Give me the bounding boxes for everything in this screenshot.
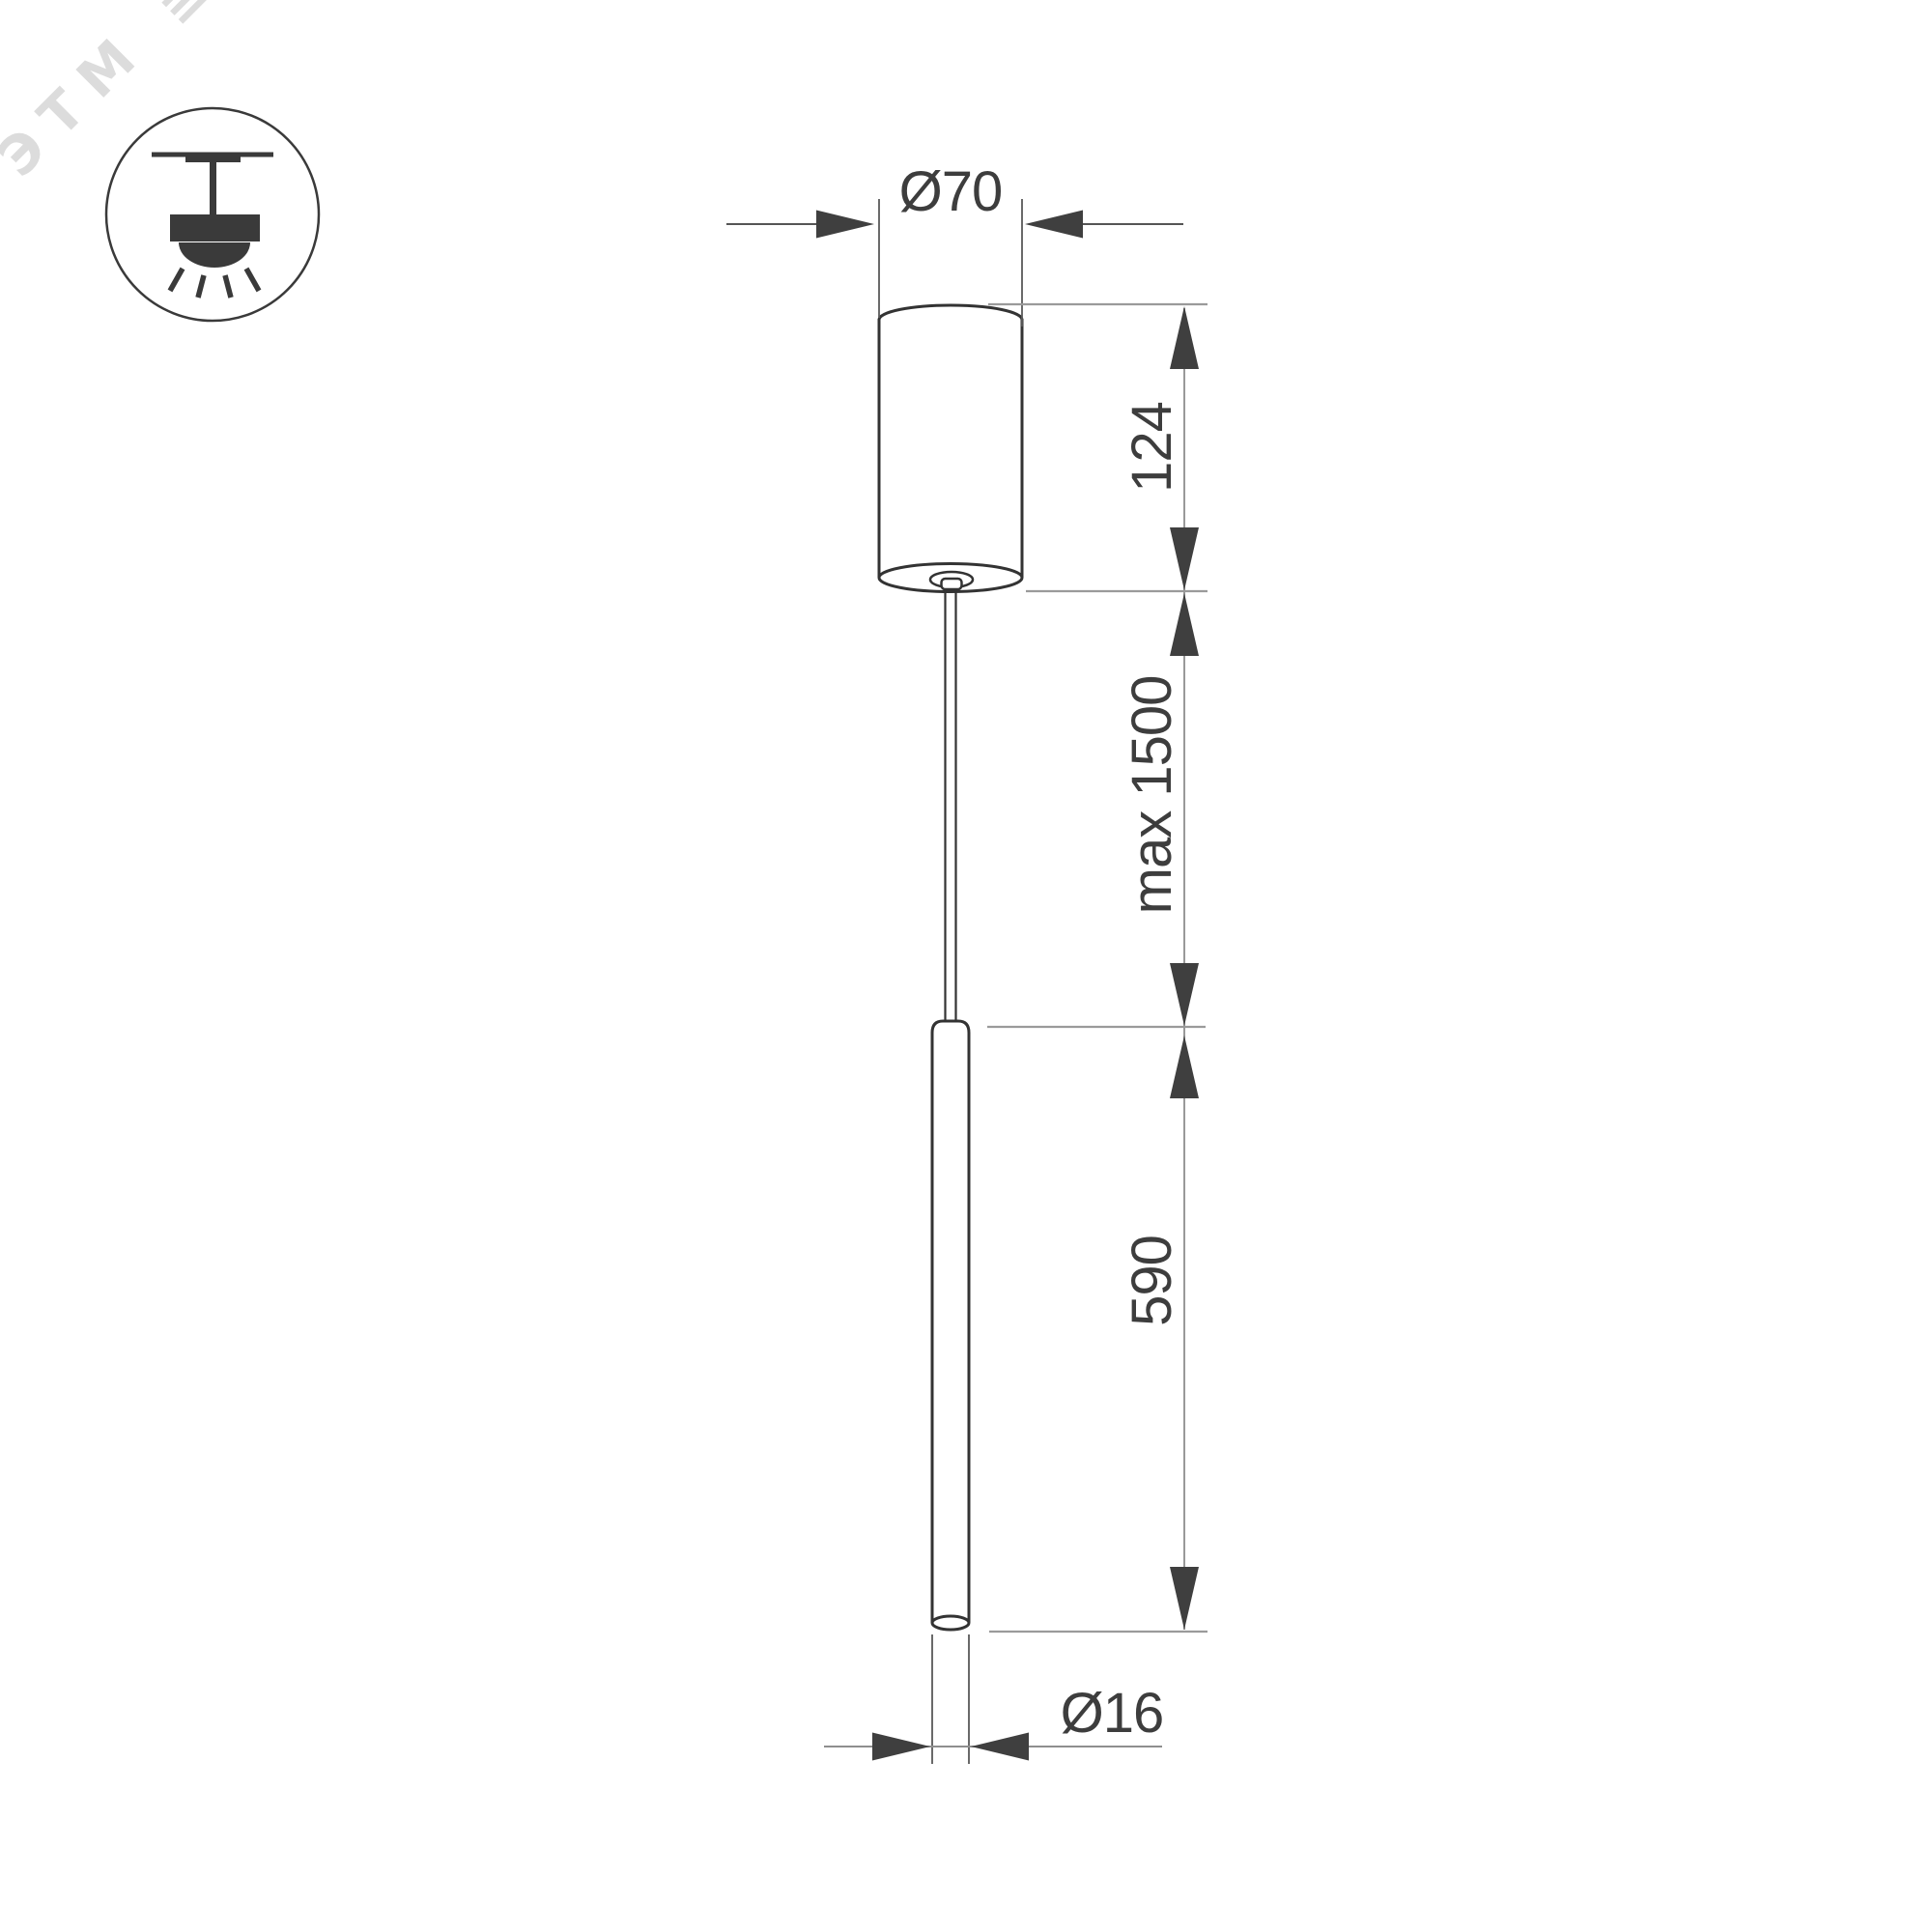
arrow-1500-bottom xyxy=(1170,963,1199,1026)
suspension-cable xyxy=(946,589,956,1022)
arrow-590-bottom xyxy=(1170,1567,1199,1630)
lamp-tube xyxy=(932,1021,969,1623)
fixture-outline xyxy=(879,305,1022,1630)
icon-stem xyxy=(210,156,216,216)
label-canopy-diameter: Ø70 xyxy=(899,160,1003,223)
pendant-fixture-dimension-drawing: Ø70 124 max 1500 590 Ø16 xyxy=(0,0,1932,1932)
arrow-d16-left xyxy=(872,1733,930,1761)
arrow-d70-right xyxy=(1025,211,1083,239)
arrow-590-top xyxy=(1170,1036,1199,1098)
cable-gland-plug xyxy=(942,579,962,589)
arrow-1500-top xyxy=(1170,593,1199,656)
lamp-tube-bottom-ellipse xyxy=(932,1616,969,1630)
label-tube-diameter: Ø16 xyxy=(1061,1682,1164,1745)
label-suspension-length: max 1500 xyxy=(1121,676,1183,915)
canopy-top-arc xyxy=(879,305,1022,320)
pendant-ceiling-mount-icon xyxy=(106,108,319,321)
icon-lamp-body xyxy=(170,214,260,241)
drawing-canvas: ЭТМ ≣ xyxy=(0,0,1932,1932)
arrow-d70-left xyxy=(816,211,874,239)
label-canopy-height: 124 xyxy=(1121,402,1183,493)
arrow-124-top xyxy=(1170,306,1199,369)
arrow-124-bottom xyxy=(1170,527,1199,590)
arrow-d16-right xyxy=(971,1733,1029,1761)
label-tube-length: 590 xyxy=(1121,1236,1183,1326)
